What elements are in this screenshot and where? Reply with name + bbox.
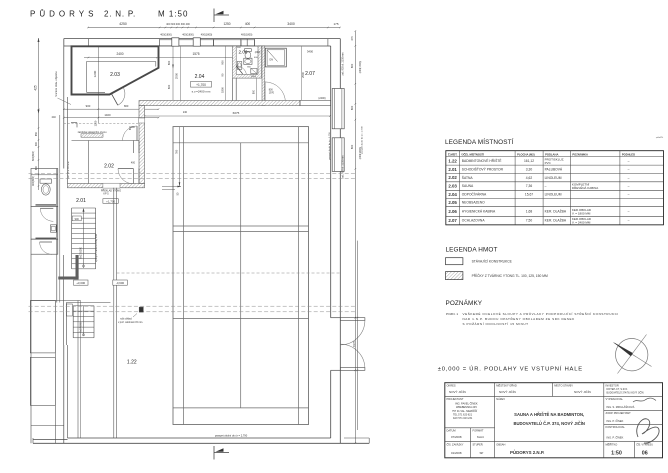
svg-text:400(1800): 400(1800) (182, 33, 194, 36)
svg-text:(200): (200) (255, 51, 261, 54)
svg-text:OBSAH: OBSAH (496, 442, 505, 446)
svg-text:SP: SP (480, 451, 484, 455)
svg-text:KER. DLAŽBA: KER. DLAŽBA (545, 218, 567, 223)
svg-text:4,62: 4,62 (526, 176, 533, 180)
svg-text:–: – (628, 210, 630, 214)
svg-text:LEGENDA HMOT: LEGENDA HMOT (446, 247, 498, 254)
svg-text:zazdívka stávajícího otvoru: zazdívka stávajícího otvoru (78, 131, 108, 134)
svg-text:DOTEP-CT, S.R.O.: DOTEP-CT, S.R.O. (607, 388, 629, 391)
svg-text:9x175/290: 9x175/290 (81, 321, 83, 332)
svg-text:FORMÁT: FORMÁT (473, 429, 484, 433)
svg-text:900: 900 (75, 218, 80, 221)
svg-text:LEGENDA MÍSTNOSTÍ: LEGENDA MÍSTNOSTÍ (445, 137, 514, 146)
svg-text:NÁZEV: NÁZEV (496, 397, 505, 401)
svg-text:1.22: 1.22 (448, 158, 457, 163)
svg-text:KER. DLAŽBA: KER. DLAŽBA (545, 209, 567, 214)
svg-text:WREBENSKA 245: WREBENSKA 245 (456, 406, 477, 409)
svg-text:V. = 1800 MM: V. = 1800 MM (572, 212, 591, 216)
svg-text:400 300 400 300 400: 400 300 400 300 400 (166, 23, 190, 26)
svg-text:1400: 1400 (104, 113, 111, 117)
svg-text:600: 600 (167, 84, 171, 89)
svg-text:PŘÍČKY Z TVÁRNIC YTONG TL. 100: PŘÍČKY Z TVÁRNIC YTONG TL. 100, 125, 150… (472, 273, 548, 278)
svg-text:LINOLEUM: LINOLEUM (545, 193, 562, 197)
svg-text:1200: 1200 (93, 70, 97, 77)
svg-text:07/2008: 07/2008 (451, 435, 462, 439)
svg-text:OCHLAZOVNA: OCHLAZOVNA (462, 219, 486, 223)
svg-text:800: 800 (167, 60, 171, 65)
svg-text:SAUNA: SAUNA (462, 184, 474, 188)
svg-text:9x175/290: 9x175/290 (80, 246, 83, 258)
svg-text:15,67: 15,67 (525, 193, 533, 197)
svg-text:400: 400 (131, 162, 136, 165)
svg-text:PODLAHA: PODLAHA (545, 152, 558, 156)
svg-text:parapet okolní ds úr = 2,790: parapet okolní ds úr = 2,790 (361, 126, 364, 154)
svg-text:výstupní rameno šířky 900: výstupní rameno šířky 900 (95, 233, 98, 262)
svg-text:ODPOČÍVÁRNA: ODPOČÍVÁRNA (462, 192, 487, 197)
svg-text:ČÍS. VÝKRESU: ČÍS. VÝKRESU (636, 443, 653, 446)
svg-text:V. = 2400 MM: V. = 2400 MM (572, 221, 591, 225)
svg-text:INVESTOR: INVESTOR (606, 383, 619, 387)
svg-text:3400: 3400 (287, 22, 295, 26)
svg-text:1975: 1975 (352, 341, 356, 347)
svg-text:–: – (628, 184, 630, 188)
svg-text:BUDOVATELŮ Č.P. 374, NOVÝ JIČÍ: BUDOVATELŮ Č.P. 374, NOVÝ JIČÍN (513, 421, 584, 426)
svg-text:760: 760 (175, 149, 179, 154)
svg-text:175: 175 (333, 22, 338, 26)
svg-text:300: 300 (35, 141, 38, 146)
svg-text:PŮDORYS 2.N.P.: PŮDORYS 2.N.P. (510, 450, 544, 455)
svg-text:hranice stáv. objektu: hranice stáv. objektu (54, 71, 58, 97)
svg-text:(900): (900) (251, 76, 256, 78)
svg-text:NOVÝ JIČÍN: NOVÝ JIČÍN (574, 389, 591, 394)
svg-text:161,12: 161,12 (524, 159, 534, 163)
svg-text:7,36: 7,36 (526, 184, 533, 188)
svg-text:400(800): 400(800) (32, 176, 35, 186)
svg-text:475: 475 (350, 36, 354, 41)
svg-text:BADMINTONOVÉ HŘIŠTĚ: BADMINTONOVÉ HŘIŠTĚ (462, 158, 502, 163)
svg-text:parapet okolní ds ár = 1,750: parapet okolní ds ár = 1,750 (328, 132, 331, 160)
svg-text:PŮDORYS: PŮDORYS (30, 10, 97, 19)
svg-text:v pož. odolnosti 15 min.: v pož. odolnosti 15 min. (118, 321, 143, 324)
svg-text:PODHLED: PODHLED (622, 152, 635, 156)
svg-text:1800: 1800 (220, 87, 224, 93)
svg-text:400: 400 (245, 22, 251, 26)
svg-text:2.07: 2.07 (305, 71, 315, 77)
svg-text:DATUM: DATUM (447, 429, 456, 433)
svg-text:400(1800): 400(1800) (241, 33, 253, 36)
svg-text:NOVÝ JIČÍN: NOVÝ JIČÍN (449, 389, 466, 394)
svg-text:KP 5: KP 5 (103, 193, 109, 196)
svg-text:800: 800 (350, 63, 354, 68)
svg-text:2.04: 2.04 (448, 192, 457, 197)
svg-text:7,50: 7,50 (526, 219, 533, 223)
svg-text:S POŽÁRNÍ ODOLNOSTÍ 15 MINUT: S POŽÁRNÍ ODOLNOSTÍ 15 MINUT (463, 321, 529, 326)
svg-text:POZN. 1: POZN. 1 (446, 312, 458, 316)
svg-text:FAX 571 023 231: FAX 571 023 231 (453, 417, 473, 420)
svg-text:NAD 1.N.P. BUDOU OPATŘENY OBKL: NAD 1.N.P. BUDOU OPATŘENY OBKLADEM ZE SD… (463, 316, 576, 321)
svg-text:DN: DN (270, 59, 274, 62)
svg-text:1.22: 1.22 (127, 360, 137, 366)
svg-text:2400: 2400 (116, 52, 123, 56)
svg-text:240: 240 (52, 116, 57, 119)
svg-text:+3,000: +3,000 (76, 281, 85, 285)
svg-text:LINOLEUM: LINOLEUM (545, 176, 562, 180)
svg-text:PROJEKTANT: PROJEKTANT (447, 397, 464, 401)
svg-text:-0,600: -0,600 (116, 281, 125, 285)
svg-text:POZNÁMKY: POZNÁMKY (446, 298, 483, 307)
svg-text:400(1800): 400(1800) (201, 33, 213, 36)
svg-text:–: – (628, 167, 630, 171)
svg-text:+1,700: +1,700 (196, 83, 206, 87)
svg-text:OKRES: OKRES (447, 384, 456, 388)
svg-text:STÁVAJÍCÍ KONSTRUKCE: STÁVAJÍCÍ KONSTRUKCE (472, 260, 513, 264)
svg-text:757 01 VAL. MEZIŘÍČÍ: 757 01 VAL. MEZIŘÍČÍ (452, 410, 478, 413)
svg-text:parapet okolní ds úr = 2,790: parapet okolní ds úr = 2,790 (215, 433, 248, 437)
svg-text:2.01: 2.01 (76, 198, 86, 204)
svg-text:ŠATNA: ŠATNA (462, 175, 474, 180)
svg-text:–: – (628, 176, 630, 180)
svg-text:KONTROLOVAL: KONTROLOVAL (606, 425, 626, 429)
svg-text:2.01: 2.01 (448, 167, 457, 172)
svg-text:400(1800): 400(1800) (160, 33, 172, 36)
svg-text:800: 800 (350, 105, 354, 110)
svg-text:2.02: 2.02 (448, 175, 457, 180)
svg-text:3,30: 3,30 (526, 167, 533, 171)
svg-text:800: 800 (350, 144, 354, 149)
svg-text:zač. 900 dl. 2200 mm: zač. 900 dl. 2200 mm (342, 156, 345, 179)
svg-text:2.06: 2.06 (448, 209, 457, 214)
svg-text:STUPEŇ: STUPEŇ (473, 443, 483, 446)
svg-text:2500: 2500 (174, 72, 178, 79)
svg-text:3400: 3400 (307, 49, 314, 53)
svg-text:–: – (628, 159, 630, 163)
svg-text:6075: 6075 (233, 111, 240, 115)
svg-text:1:50: 1:50 (611, 451, 622, 457)
svg-text:s.v.=2400 mm: s.v.=2400 mm (192, 90, 211, 94)
svg-text:425: 425 (34, 85, 38, 91)
svg-text:2.07: 2.07 (448, 218, 457, 223)
svg-text:M 1:50: M 1:50 (158, 10, 188, 19)
svg-text:1970: 1970 (269, 91, 275, 94)
svg-text:800: 800 (124, 104, 129, 108)
svg-text:1200: 1200 (93, 120, 97, 126)
svg-text:PALUBOVÁ: PALUBOVÁ (545, 167, 563, 171)
svg-text:4250: 4250 (119, 22, 127, 26)
svg-text:1250: 1250 (223, 22, 230, 26)
svg-text:6xA4: 6xA4 (477, 435, 484, 439)
svg-text:2.05: 2.05 (448, 200, 457, 205)
svg-text:zač. 05 a 220 mm: zač. 05 a 220 mm (68, 161, 70, 179)
svg-text:ČÍS. ZAKÁZKY: ČÍS. ZAKÁZKY (447, 443, 464, 446)
svg-text:–: – (628, 219, 630, 223)
svg-text:(200(1700)): (200(1700)) (359, 61, 362, 74)
svg-text:ZODP. PROJEKTANT: ZODP. PROJEKTANT (606, 411, 632, 415)
svg-text:2.03: 2.03 (110, 72, 120, 78)
svg-text:BUDOVATELŮ 374/78, NOVÝ JIČÍN: BUDOVATELŮ 374/78, NOVÝ JIČÍN (607, 391, 644, 394)
svg-text:DŘEVĚNÁ KABINA: DŘEVĚNÁ KABINA (572, 185, 598, 190)
svg-text:850: 850 (35, 131, 38, 136)
svg-text:zač. 900 dl. 2200 mm: zač. 900 dl. 2200 mm (342, 53, 345, 76)
svg-text:400: 400 (131, 126, 136, 129)
svg-text:800: 800 (35, 165, 38, 170)
svg-text:NOVÝ JIČÍN: NOVÝ JIČÍN (499, 389, 516, 394)
svg-text:900: 900 (86, 104, 91, 108)
svg-text:TEL 571 620 621: TEL 571 620 621 (453, 413, 473, 416)
svg-text:240: 240 (183, 111, 188, 114)
svg-text:SCHODIŠŤOVÝ PROSTOR: SCHODIŠŤOVÝ PROSTOR (462, 166, 504, 171)
svg-text:900: 900 (220, 60, 224, 65)
svg-text:2.04: 2.04 (195, 74, 205, 80)
svg-text:VYPRACOVAL: VYPRACOVAL (606, 397, 624, 401)
svg-text:±0,000 = ÚR. PODLAHY VE VSTU: ±0,000 = ÚR. PODLAHY VE VSTUPNÍ HALE (438, 366, 583, 373)
svg-text:–: – (628, 193, 630, 197)
svg-text:MÍSTO STAVBY: MÍSTO STAVBY (554, 384, 573, 388)
svg-text:2. N. P.: 2. N. P. (104, 10, 136, 19)
svg-text:2.03: 2.03 (448, 184, 457, 189)
svg-text:PLOCHA (M2): PLOCHA (M2) (517, 152, 535, 156)
svg-text:PVC: PVC (545, 161, 552, 165)
svg-text:HYGIENICKÁ KABINA: HYGIENICKÁ KABINA (462, 210, 496, 214)
svg-text:–: – (545, 184, 547, 188)
svg-text:2.02: 2.02 (104, 164, 114, 170)
svg-text:06: 06 (642, 451, 648, 457)
svg-text:(2400): (2400) (318, 97, 325, 100)
svg-text:1,68: 1,68 (526, 210, 533, 214)
svg-text:800: 800 (253, 89, 256, 94)
svg-text:01/2008: 01/2008 (451, 451, 462, 455)
svg-text:1575: 1575 (192, 52, 199, 56)
svg-text:VEŠKERÉ OCELOVÉ SLOUPY A PRŮVL: VEŠKERÉ OCELOVÉ SLOUPY A PRŮVLAKY PODPOR… (463, 311, 619, 316)
svg-text:NEOBSAZENO: NEOBSAZENO (462, 201, 485, 205)
svg-text:600(800): 600(800) (32, 151, 35, 161)
svg-text:SAUNA A HŘIŠTĚ NA BADMINTON,: SAUNA A HŘIŠTĚ NA BADMINTON, (514, 412, 584, 417)
